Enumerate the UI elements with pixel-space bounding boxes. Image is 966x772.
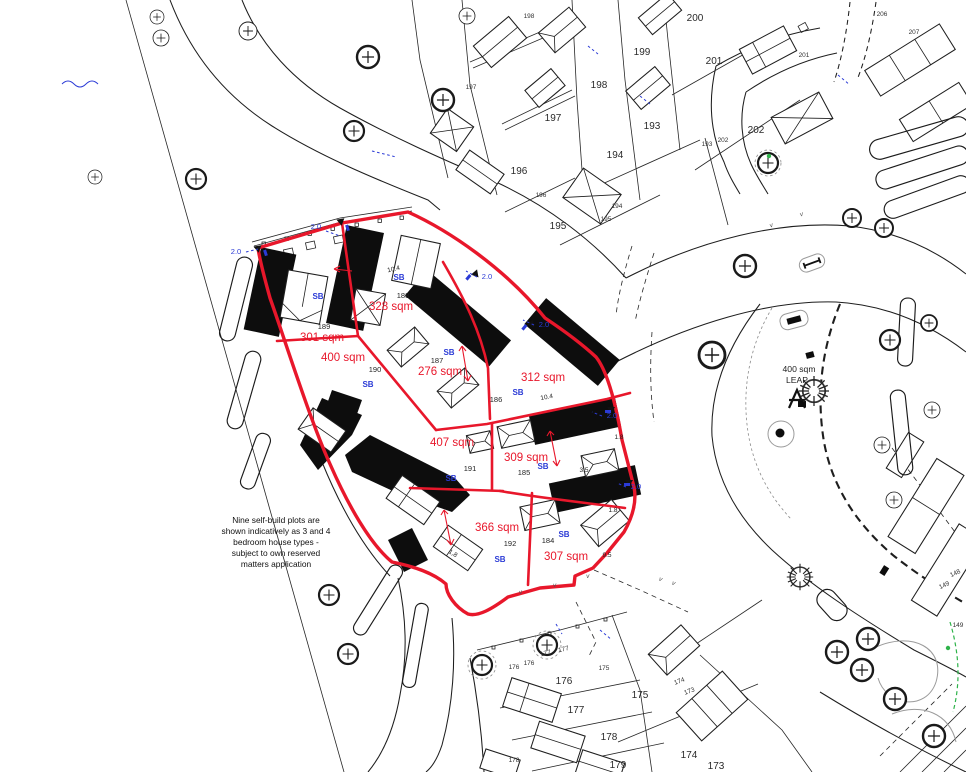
adjacent-plot-number-small: 198: [524, 13, 535, 20]
green-marker-dot: [767, 154, 771, 158]
note-line: matters application: [241, 559, 312, 569]
adjacent-plot-number: 179: [610, 760, 627, 771]
adjacent-plot-number: 195: [550, 221, 567, 232]
adjacent-plot-number: 176: [556, 676, 573, 687]
offset-dimension: 2.0: [631, 482, 641, 491]
adjacent-plot-number: 178: [601, 732, 618, 743]
adjacent-plot-number-small: 194: [612, 203, 623, 210]
site-plan-page: 189 301 sqm SB 188 328 sqm SB 190 400 sq…: [0, 0, 966, 772]
note-line: subject to own reserved: [232, 548, 321, 558]
plot-189-sb-tag: SB: [312, 292, 323, 301]
dimension-label: 9.5: [602, 552, 611, 559]
dimension-label: 1.8: [608, 507, 617, 514]
adjacent-plot-number: 197: [545, 113, 562, 124]
plot-190-area: 400 sqm: [321, 352, 365, 364]
offset-dimension: 2.0: [311, 222, 321, 231]
adjacent-plot-number: 202: [748, 125, 765, 136]
plot-191-sb-tag: SB: [445, 474, 456, 483]
note-line: Nine self-build plots are: [232, 515, 320, 525]
adjacent-plot-number-small: 196: [536, 192, 547, 199]
adjacent-plot-number-small: 178: [509, 757, 520, 764]
plot-192-number: 192: [504, 539, 517, 548]
plot-187-sb-tag: SB: [443, 348, 454, 357]
adjacent-plot-number-small: 197: [466, 84, 477, 91]
offset-dimension: 2.0: [539, 320, 549, 329]
plot-192-area: 366 sqm: [475, 522, 519, 534]
plot-191-area: 407 sqm: [430, 437, 474, 449]
green-marker-dot: [946, 646, 950, 650]
plot-184-sb-tag: SB: [558, 530, 569, 539]
adjacent-plot-number: 177: [568, 705, 585, 716]
adjacent-plot-number: 175: [632, 690, 649, 701]
adjacent-plot-number: 194: [607, 150, 624, 161]
adjacent-plot-number: 201: [706, 56, 723, 67]
adjacent-plot-number: 198: [591, 80, 608, 91]
plot-191-number: 191: [464, 464, 477, 473]
plot-187-number: 187: [431, 356, 444, 365]
plot-186-number: 186: [490, 395, 503, 404]
adjacent-plot-number-small: 207: [909, 29, 920, 36]
plot-185-sb-tag: SB: [537, 462, 548, 471]
plot-190-number: 190: [369, 365, 382, 374]
adjacent-plot-number-small: 206: [877, 11, 888, 18]
note-line: bedroom house types -: [233, 537, 319, 547]
plot-189-number: 189: [318, 322, 331, 331]
note-line: shown indicatively as 3 and 4: [222, 526, 331, 536]
adjacent-plot-number: 193: [644, 121, 661, 132]
adjacent-plot-number-small: 175: [599, 665, 610, 672]
plot-192-sb-tag: SB: [494, 555, 505, 564]
dimension-label: 1.8: [614, 434, 623, 441]
adjacent-plot-number: 199: [634, 47, 651, 58]
plot-187-area: 276 sqm: [418, 366, 462, 378]
adjacent-plot-number: 173: [708, 761, 725, 772]
offset-dimension: 2.0: [607, 411, 617, 420]
plot-188-number: 188: [397, 291, 410, 300]
adjacent-plot-number-small: 149: [953, 622, 964, 629]
adjacent-plot-number-small: 176: [509, 664, 520, 671]
dimension-label: 3.5: [579, 467, 588, 474]
offset-dimension: 2.0: [231, 247, 241, 256]
adjacent-plot-number-small: 193: [702, 141, 713, 148]
plot-188-area: 328 sqm: [369, 301, 413, 313]
plot-186-sb-tag: SB: [512, 388, 523, 397]
adjacent-plot-number: 200: [687, 13, 704, 24]
adjacent-plot-number-small: 195: [601, 216, 612, 223]
adjacent-plot-number-small: 201: [799, 52, 810, 59]
plot-186-area: 312 sqm: [521, 372, 565, 384]
plot-188-sb-tag: SB: [393, 273, 404, 282]
plot-184-number: 184: [542, 536, 555, 545]
tree-canopy-icon: [787, 564, 813, 590]
adjacent-plot-number-small: 176: [524, 660, 535, 667]
plot-184-area: 307 sqm: [544, 551, 588, 563]
adjacent-plot-number-small: 202: [718, 137, 729, 144]
leap-area-label: 400 sqm: [783, 364, 816, 374]
plot-190-sb-tag: SB: [362, 380, 373, 389]
plot-185-number: 185: [518, 468, 531, 477]
adjacent-plot-number: 174: [681, 750, 698, 761]
site-plan-drawing: 189 301 sqm SB 188 328 sqm SB 190 400 sq…: [0, 0, 966, 772]
leap-name-label: LEAP: [786, 375, 808, 385]
adjacent-plot-number: 196: [511, 166, 528, 177]
plot-189-area: 301 sqm: [300, 332, 344, 344]
offset-dimension: 2.0: [482, 272, 492, 281]
